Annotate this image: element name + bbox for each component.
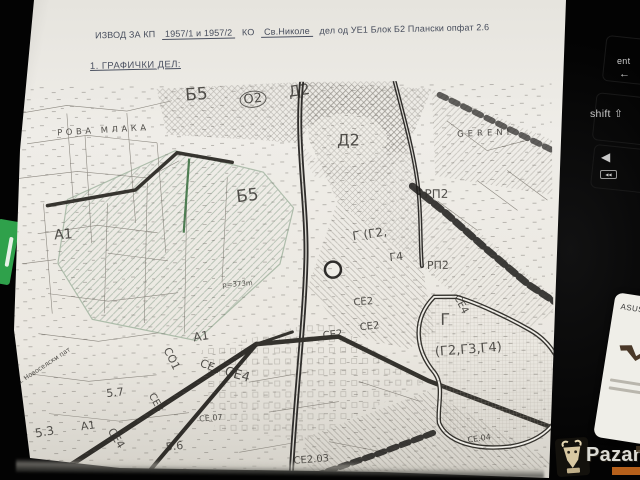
map-label: Д2 — [288, 82, 311, 100]
shift-arrow-icon: ⇧ — [614, 108, 623, 120]
map-label: 5.6 — [165, 440, 184, 453]
asus-logo-icon — [615, 341, 640, 364]
map-label: СЕ2 — [322, 330, 343, 342]
map-label: Г (Г2, — [352, 225, 388, 242]
map-label: ул. Новоселски пат — [13, 346, 72, 388]
map-label: СО1 — [162, 346, 182, 372]
watermark-text: Pazar5 — [586, 444, 640, 467]
shift-key-label: shift ⇧ — [590, 108, 623, 120]
enter-arrow-icon: ← — [619, 68, 630, 80]
watermark: Pazar5 — [556, 434, 640, 480]
map-label: СЕ4 — [199, 358, 223, 376]
media-prev-icon: ◀◀ — [600, 170, 617, 179]
cadastral-municipality: Св.Николе — [261, 26, 313, 38]
sticker-text-line — [609, 386, 640, 396]
paper-document: ИЗВОД ЗА КП 1957/1 и 1957/2 КО Св.Николе… — [0, 0, 640, 480]
map-label: СЕ4 — [106, 426, 127, 450]
asus-brand-text: ASUS V — [620, 302, 640, 316]
map-label: СЕ4 — [451, 294, 469, 316]
map-label: Д2 — [337, 132, 360, 148]
map-label: СЕ.07 — [199, 414, 223, 424]
parcel-numbers: 1957/1 и 1957/2 — [162, 27, 236, 40]
map-label: СЕ2 — [353, 297, 373, 308]
map-label: РОВА МЛАКА — [57, 124, 150, 138]
map-label: СЕ2 — [359, 321, 380, 333]
map-label: СЕ3 — [146, 392, 164, 414]
section-title: 1. ГРАФИЧКИ ДЕЛ: — [90, 59, 181, 72]
map-label: р=373m — [222, 280, 253, 289]
map-label: Г — [440, 312, 450, 328]
document-header: ИЗВОД ЗА КП 1957/1 и 1957/2 КО Св.Николе… — [95, 22, 515, 41]
map-label: А1 — [192, 329, 209, 343]
goat-icon — [555, 437, 591, 477]
map-labels: Б5О2Д2РОВА МЛАКАGERENIД2РП2Б5А1Г (Г2,Г4Р… — [7, 80, 555, 474]
arrow-left-icon: ◀ — [601, 150, 611, 164]
map-label: 5.3 — [34, 424, 55, 439]
header-text: ИЗВОД ЗА КП — [95, 29, 156, 40]
header-text: дел од УЕ1 Блок Б2 Плански опфат 2.6 — [319, 22, 489, 36]
map-label: А1 — [54, 227, 74, 242]
header-text: КО — [242, 27, 255, 37]
map-label: СЕ4 — [223, 365, 251, 384]
map-label: 5.7 — [106, 386, 125, 399]
map-label: СЕ.04 — [467, 433, 491, 444]
watermark-mark — [636, 446, 640, 452]
shift-key — [592, 92, 640, 148]
pazar5-logo — [555, 437, 591, 477]
map-label: РП2 — [424, 188, 448, 200]
map-label: Б5 — [185, 86, 209, 105]
shift-label-text: shift — [590, 108, 611, 120]
enter-key-label: ent — [617, 56, 630, 66]
sticker-text-line — [610, 378, 640, 386]
cadastral-map: Б5О2Д2РОВА МЛАКАGERENIД2РП2Б5А1Г (Г2,Г4Р… — [7, 80, 555, 474]
map-label: О2 — [239, 89, 267, 109]
map-label: РП2 — [427, 260, 449, 271]
map-label: (Г2,Г3,Г4) — [434, 341, 502, 359]
green-card-stripe — [5, 237, 14, 267]
map-label: Г4 — [389, 251, 404, 263]
map-label: Б5 — [235, 187, 259, 206]
map-label: А1 — [80, 419, 96, 432]
watermark-phone-strip — [612, 467, 640, 475]
map-label: GERENI — [457, 128, 513, 139]
photo-scene: ent ← shift ⇧ ◀ ◀◀ ASUS V ИЗВОД ЗА КП 19… — [0, 0, 640, 480]
